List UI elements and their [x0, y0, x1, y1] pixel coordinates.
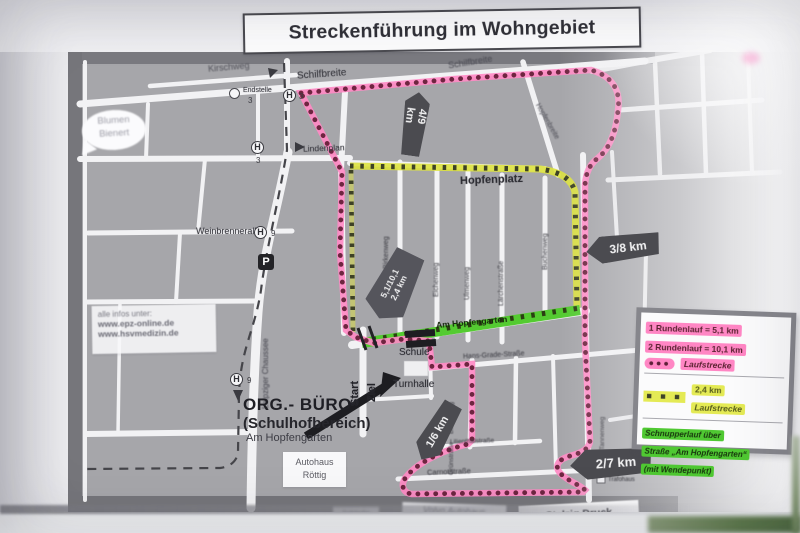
street-label-lilienthalstrasse: Lilienthalstraße — [450, 437, 494, 446]
tram-stop-icon: H — [251, 141, 264, 154]
trafohaus-label: Trafohaus — [608, 477, 635, 483]
legend-round1: 1 Rundenlauf = 5,1 km — [646, 322, 742, 337]
legend-schnupper-3: (mit Wendepunkt) — [641, 464, 715, 478]
legend-box: 1 Rundenlauf = 5,1 km 2 Rundenlauf = 10,… — [632, 307, 797, 454]
background-green-strip — [648, 516, 800, 533]
route-squares-icon: ■ ■ ■ — [643, 390, 686, 402]
org-line1: ORG.- BÜRO — [243, 395, 371, 415]
endstelle-label: Endstelle — [243, 87, 272, 94]
tram-stop-icon: H — [283, 89, 296, 102]
tram-line-number: 3 — [299, 92, 303, 101]
info-url-2: www.hsvmedizin.de — [98, 327, 210, 339]
km-marker-1-6: 1/6 km — [410, 398, 465, 467]
km-marker-4-9-label: 4/9 km — [400, 106, 428, 141]
street-label-am-hopfengarten: Am Hopfengarten — [436, 314, 508, 330]
legend-laufstrecke-24: Laufstrecke — [691, 402, 745, 415]
org-line3: Am Hopfengarten — [246, 432, 371, 444]
blumen-bienert-bubble: Blumen Bienert — [81, 108, 147, 151]
street-label-carnotstrasse: Carnotstraße — [427, 466, 471, 477]
map-photo: Streckenführung im Wohngebiet Kirschweg … — [0, 0, 800, 533]
info-box: alle infos unter: www.epz-online.de www.… — [92, 304, 217, 354]
endstelle-circle-icon — [229, 88, 240, 99]
parking-icon: P — [258, 254, 274, 270]
legend-laufstrecke-main: Laufstrecke — [681, 358, 735, 372]
km-marker-finish-label: 5,1/10,1 2,4 km — [379, 268, 410, 304]
km-marker-3-8-label: 3/8 km — [585, 236, 660, 259]
paper-bottom-shadow — [0, 505, 690, 514]
turnhalle-label: Turnhalle — [393, 379, 434, 390]
bus-stop-icon: H — [254, 226, 267, 239]
street-label-laerchenstrasse: Lärchenstraße — [498, 261, 505, 306]
street-label-eichenweg: Eichenweg — [433, 263, 440, 297]
background-green-edge — [792, 436, 800, 533]
street-label-buchenweg: Buchenweg — [542, 233, 549, 270]
street-label-schilfbreite-east: Schilfbreite — [447, 54, 493, 71]
legend-row-24km: ■ ■ ■ 2,4 km Laufstrecke — [643, 377, 784, 420]
legend-row-main: 1 Rundenlauf = 5,1 km 2 Rundenlauf = 10,… — [644, 317, 786, 375]
street-label-kirschweg: Kirschweg — [208, 60, 250, 74]
legend-round2: 2 Rundenlauf = 10,1 km — [645, 341, 746, 357]
street-label-tannenweg: Tannenweg — [599, 417, 606, 450]
legend-schnupper-1: Schnupperlauf über — [642, 428, 724, 442]
endstelle-line-number: 3 — [248, 96, 252, 105]
labels-layer: Kirschweg Schilfbreite Schilfbreite Lind… — [0, 0, 800, 533]
street-label-hans-grade: Hans-Grade-Straße — [463, 350, 525, 360]
legend-schnupper-2: Straße „Am Hopfengarten“ — [641, 446, 750, 461]
street-label-hopfenbreite: Hopfenbreite — [534, 102, 560, 140]
bus-line-number: 9 — [271, 229, 275, 238]
route-dots-icon: ●●● — [644, 357, 675, 369]
bus-line-number: 9 — [247, 376, 251, 385]
street-label-ulmenweg: Ulmenweg — [464, 267, 471, 300]
map-title: Streckenführung im Wohngebiet — [243, 7, 642, 55]
autohaus-roettig-box: Autohaus Röttig — [283, 452, 346, 487]
legend-24km-value: 2,4 km — [692, 384, 725, 396]
bus-stop-icon: H — [230, 373, 243, 386]
street-label-lindenplan: Lindenplan — [303, 142, 345, 153]
autohaus-line1: Autohaus — [283, 456, 346, 469]
legend-row-schnupperlauf: Schnupperlauf über Straße „Am Hopfengart… — [641, 422, 783, 483]
autohaus-line2: Röttig — [283, 469, 346, 482]
street-label-schilfbreite-west: Schilfbreite — [297, 67, 347, 81]
km-marker-finish: 5,1/10,1 2,4 km — [360, 244, 429, 327]
org-buero-callout: ORG.- BÜRO (Schulhofbereich) Am Hopfenga… — [243, 395, 371, 444]
org-line2: (Schulhofbereich) — [243, 415, 371, 432]
km-marker-3-8: 3/8 km — [585, 230, 662, 266]
place-label-hopfenplatz: Hopfenplatz — [460, 173, 523, 187]
tram-line-number: 3 — [256, 156, 260, 165]
schule-label: Schule — [399, 347, 430, 358]
km-marker-4-9: 4/9 km — [398, 91, 432, 158]
blumen-line2: Bienert — [82, 126, 147, 142]
